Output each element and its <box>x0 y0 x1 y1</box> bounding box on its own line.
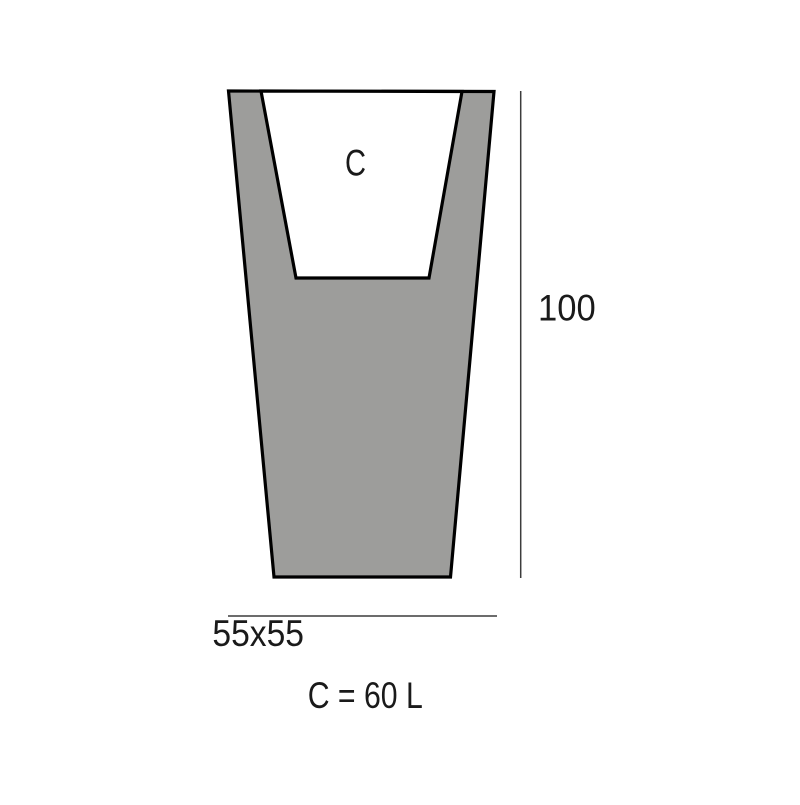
svg-text:C: C <box>345 143 366 184</box>
svg-text:C = 60 L: C = 60 L <box>308 675 423 716</box>
svg-text:100: 100 <box>538 288 596 329</box>
svg-text:55x55: 55x55 <box>212 613 304 654</box>
